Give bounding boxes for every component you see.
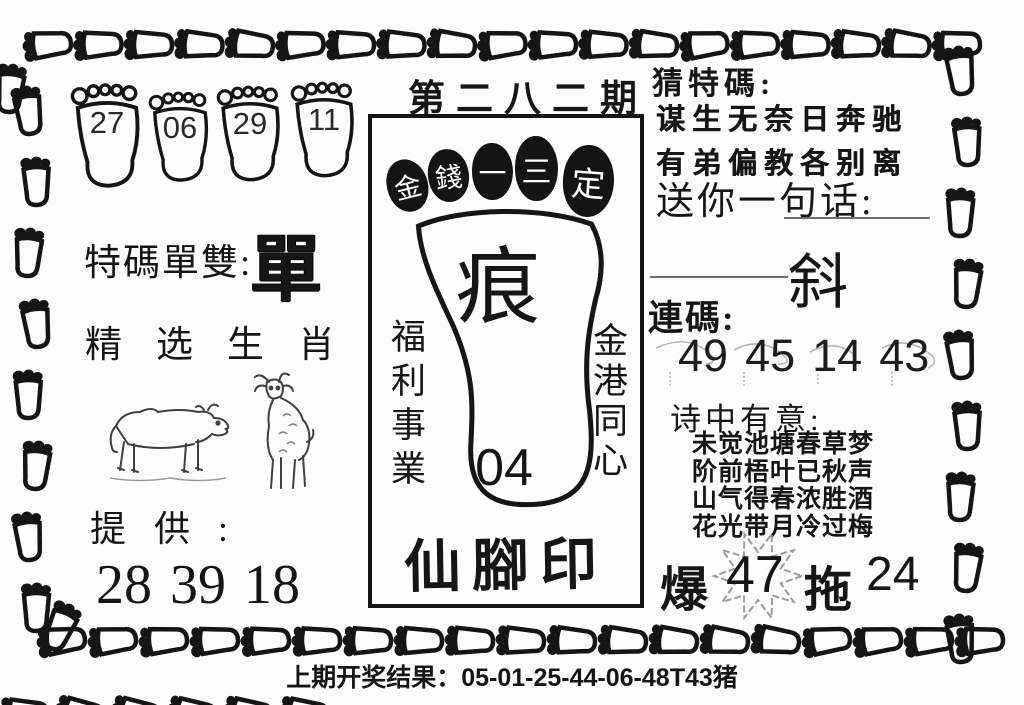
brand-title: 仙腳印 — [399, 518, 612, 604]
toe-char: 定 — [570, 155, 607, 206]
toe-char: 金 — [390, 163, 426, 207]
odd-even-label: 特碼單雙: — [84, 232, 252, 286]
tuo-number: 24 — [866, 547, 919, 602]
toe-char: 一 — [478, 152, 506, 192]
provide-numbers: 28 39 18 — [96, 553, 300, 617]
poem-line: 花光带月冷过梅 — [692, 514, 874, 542]
blank-line — [784, 217, 930, 219]
toe-char: 錢 — [433, 155, 464, 197]
fairy-footprint-box: 金 錢 一 三 定 痕 04 福利事業 金港同心 仙腳印 — [368, 114, 644, 608]
provide-number: 39 — [170, 553, 226, 617]
blank-line — [650, 276, 788, 278]
toe-seal-2: 錢 — [425, 147, 471, 204]
provide-label: 提供: — [90, 500, 256, 552]
sole-character: 痕 — [430, 220, 566, 341]
provide-number: 18 — [244, 553, 300, 617]
lianma-number: 14 — [812, 330, 862, 382]
poem-line: 未觉池塘春草梦 — [692, 431, 874, 459]
tuo-label: 拖 — [804, 550, 852, 620]
number-foot-4: 11 — [290, 81, 358, 181]
poem-line: 山气得春浓胜酒 — [692, 486, 874, 514]
bao-number: 47 — [726, 545, 784, 605]
lianma-number: 45 — [745, 330, 795, 382]
provide-number: 28 — [96, 553, 152, 617]
sole-number: 04 — [440, 438, 568, 498]
toe-seal-4: 三 — [515, 136, 558, 201]
odd-even-value: 單 — [250, 210, 322, 315]
number-foot-2: 06 — [148, 90, 212, 186]
toe-seal-3: 一 — [472, 143, 513, 200]
foot-number: 11 — [290, 102, 358, 138]
goat-image — [243, 368, 325, 498]
number-foot-3: 29 — [216, 85, 284, 185]
message-answer: 斜 — [788, 234, 848, 321]
toe-char: 三 — [522, 147, 552, 191]
last-draw-result: 上期开奖结果：05-01-25-44-06-48T43猪 — [0, 658, 1024, 694]
vertical-text-left: 福利事業 — [380, 318, 431, 494]
foot-number: 27 — [70, 105, 144, 141]
foot-number: 06 — [148, 110, 212, 146]
lianma-number: 43 — [879, 330, 929, 382]
foot-number: 29 — [216, 106, 284, 142]
lianma-number: 49 — [678, 330, 728, 382]
bao-label: 爆 — [660, 550, 708, 620]
vertical-text-right: 金港同心 — [582, 322, 633, 482]
lianma-numbers: 49 45 14 43 — [678, 330, 929, 382]
number-foot-1: 27 — [70, 82, 144, 192]
poem: 未觉池塘春草梦 阶前梧叶已秋声 山气得春浓胜酒 花光带月冷过梅 — [692, 431, 874, 541]
ox-image — [100, 382, 235, 490]
verse-line-1: 谋生无奈日奔驰 — [656, 96, 908, 138]
poem-line: 阶前梧叶已秋声 — [692, 459, 874, 487]
zodiac-title: 精选生肖 — [85, 314, 369, 368]
lottery-tip-sheet: 27 06 29 — [0, 0, 1024, 705]
